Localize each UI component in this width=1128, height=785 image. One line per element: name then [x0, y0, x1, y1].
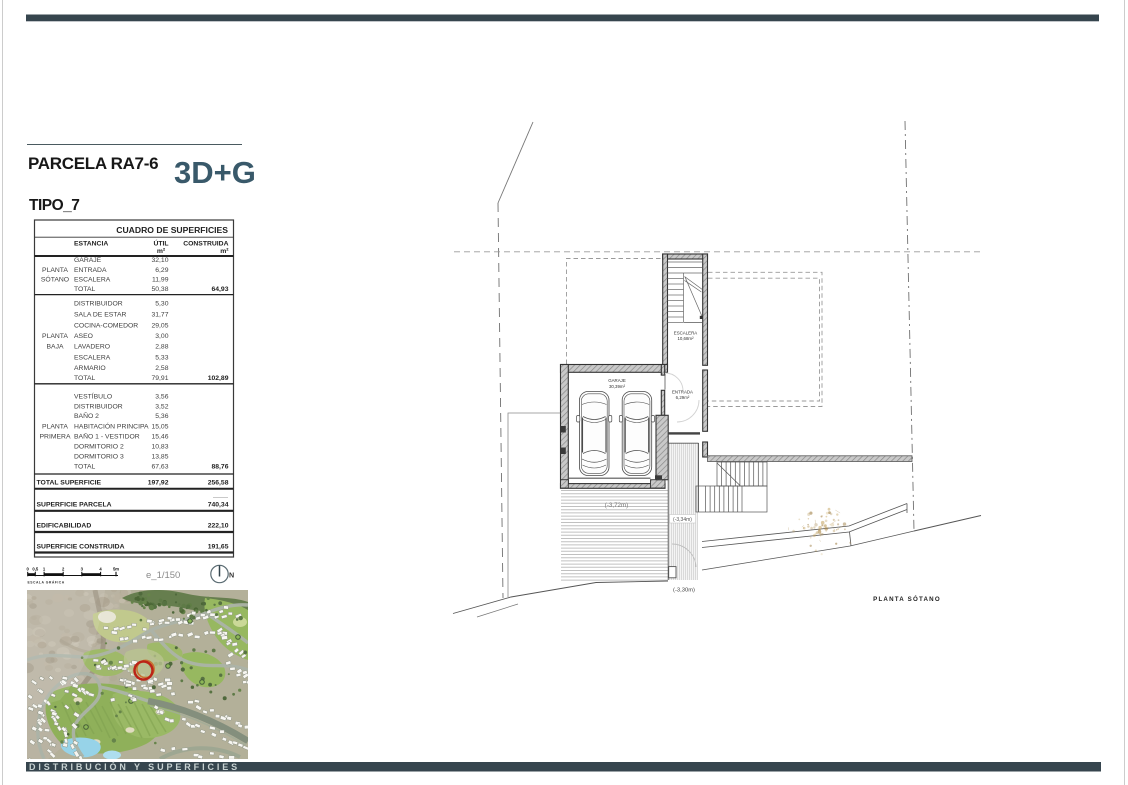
svg-text:VESTÍBULO: VESTÍBULO	[74, 392, 112, 401]
svg-text:197,92: 197,92	[148, 480, 169, 487]
svg-text:13,85: 13,85	[151, 454, 168, 461]
svg-text:SUPERFICIE PARCELA: SUPERFICIE PARCELA	[37, 502, 112, 509]
svg-text:ENTRADA: ENTRADA	[74, 267, 107, 274]
svg-text:BAÑO 1 - VESTIDOR: BAÑO 1 - VESTIDOR	[74, 432, 140, 441]
svg-text:SALA DE ESTAR: SALA DE ESTAR	[74, 312, 126, 319]
svg-text:ESCALA GRÁFICA: ESCALA GRÁFICA	[28, 580, 65, 585]
svg-text:EDIFICABILIDAD: EDIFICABILIDAD	[37, 523, 92, 530]
svg-text:ESCALERA: ESCALERA	[674, 331, 697, 336]
svg-text:ASEO: ASEO	[74, 333, 93, 340]
svg-text:TOTAL SUPERFICIE: TOTAL SUPERFICIE	[37, 480, 102, 487]
svg-text:(-3,72m): (-3,72m)	[605, 502, 628, 509]
svg-text:HABITACIÓN PRINCIPA: HABITACIÓN PRINCIPA	[74, 422, 149, 431]
svg-text:TOTAL: TOTAL	[74, 464, 95, 471]
svg-text:5,30: 5,30	[155, 301, 168, 308]
svg-text:m²: m²	[157, 248, 166, 255]
svg-text:5m: 5m	[113, 567, 119, 572]
svg-text:256,58: 256,58	[208, 480, 229, 487]
svg-text:32,10: 32,10	[151, 257, 168, 264]
svg-text:2,58: 2,58	[155, 365, 168, 372]
svg-text:ENTRADA: ENTRADA	[672, 390, 693, 395]
svg-text:79,91: 79,91	[151, 375, 168, 382]
svg-text:e_1/150: e_1/150	[146, 570, 180, 581]
svg-text:(-3,34m): (-3,34m)	[673, 517, 692, 523]
svg-text:222,10: 222,10	[208, 523, 229, 530]
svg-text:COCINA-COMEDOR: COCINA-COMEDOR	[74, 323, 138, 330]
svg-text:DORMITORIO 3: DORMITORIO 3	[74, 454, 124, 461]
svg-text:10,83: 10,83	[151, 444, 168, 451]
svg-text:GARAJE: GARAJE	[74, 257, 102, 264]
svg-text:15,05: 15,05	[151, 424, 168, 431]
svg-text:3,52: 3,52	[155, 404, 168, 411]
svg-text:191,65: 191,65	[208, 544, 229, 551]
svg-text:740,34: 740,34	[208, 502, 229, 509]
svg-text:DISTRIBUCIÓN Y SUPERFICIES: DISTRIBUCIÓN Y SUPERFICIES	[29, 761, 240, 772]
svg-text:ESCALERA: ESCALERA	[74, 355, 111, 362]
svg-text:3,56: 3,56	[155, 394, 168, 401]
svg-text:3,00: 3,00	[155, 333, 168, 340]
svg-text:15,46: 15,46	[151, 434, 168, 441]
svg-text:10,68m²: 10,68m²	[677, 336, 694, 341]
svg-text:N: N	[229, 571, 234, 580]
svg-text:PLANTA SÓTANO: PLANTA SÓTANO	[873, 595, 941, 603]
svg-text:2,88: 2,88	[155, 344, 168, 351]
svg-text:GARAJE: GARAJE	[608, 378, 626, 383]
svg-text:DISTRIBUIDOR: DISTRIBUIDOR	[74, 301, 123, 308]
svg-text:TOTAL: TOTAL	[74, 286, 95, 293]
svg-text:PLANTA: PLANTA	[42, 333, 68, 340]
svg-text:5,36: 5,36	[155, 413, 168, 420]
svg-text:BAÑO 2: BAÑO 2	[74, 411, 99, 420]
svg-text:TIPO_7: TIPO_7	[29, 197, 79, 214]
svg-text:0,5: 0,5	[32, 567, 38, 572]
svg-text:6,29m²: 6,29m²	[676, 395, 690, 400]
svg-text:m²: m²	[220, 248, 229, 255]
svg-text:(-3,30m): (-3,30m)	[673, 588, 695, 594]
svg-text:102,89: 102,89	[208, 375, 229, 382]
svg-text:5,33: 5,33	[155, 355, 168, 362]
svg-text:6,29: 6,29	[155, 267, 168, 274]
svg-text:BAJA: BAJA	[47, 344, 64, 351]
svg-text:PARCELA RA7-6: PARCELA RA7-6	[28, 154, 158, 173]
svg-text:PRIMERA: PRIMERA	[40, 434, 71, 441]
svg-text:11,99: 11,99	[152, 277, 169, 284]
svg-text:DISTRIBUIDOR: DISTRIBUIDOR	[74, 404, 123, 411]
svg-text:CUADRO DE SUPERFICIES: CUADRO DE SUPERFICIES	[116, 225, 228, 235]
svg-text:ESCALERA: ESCALERA	[74, 277, 111, 284]
svg-text:LAVADERO: LAVADERO	[74, 344, 110, 351]
svg-text:30,39m²: 30,39m²	[609, 384, 626, 389]
svg-text:29,05: 29,05	[151, 323, 168, 330]
svg-text:67,63: 67,63	[151, 464, 168, 471]
svg-text:SÓTANO: SÓTANO	[41, 275, 69, 284]
svg-text:ARMARIO: ARMARIO	[74, 365, 106, 372]
svg-text:64,93: 64,93	[211, 286, 228, 293]
svg-text:ÚTIL: ÚTIL	[153, 239, 168, 248]
svg-text:DORMITORIO 2: DORMITORIO 2	[74, 444, 124, 451]
svg-text:88,76: 88,76	[211, 464, 228, 471]
svg-text:50,38: 50,38	[151, 286, 168, 293]
svg-text:TOTAL: TOTAL	[74, 375, 95, 382]
svg-text:31,77: 31,77	[151, 312, 168, 319]
svg-text:SUPERFICIE CONSTRUIDA: SUPERFICIE CONSTRUIDA	[37, 544, 125, 551]
svg-text:ESTANCIA: ESTANCIA	[74, 241, 108, 248]
svg-text:PLANTA: PLANTA	[42, 424, 68, 431]
svg-text:3D+G: 3D+G	[174, 155, 256, 190]
svg-text:CONSTRUIDA: CONSTRUIDA	[183, 241, 228, 248]
svg-text:PLANTA: PLANTA	[42, 267, 68, 274]
